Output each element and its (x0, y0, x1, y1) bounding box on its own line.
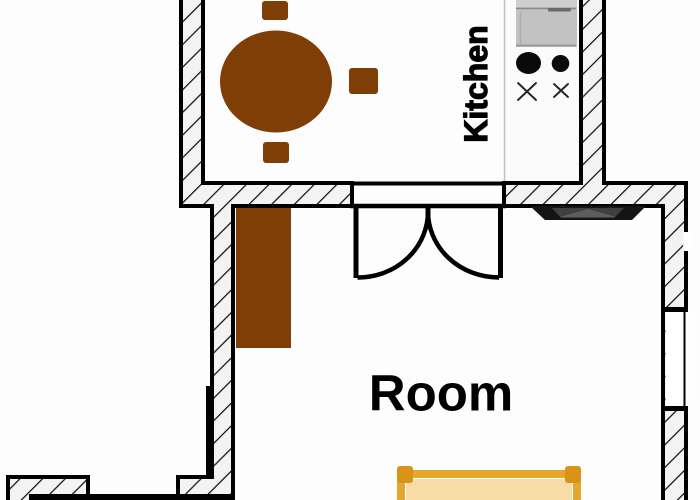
svg-text:Room: Room (369, 365, 513, 422)
svg-text:Kitchen: Kitchen (458, 25, 494, 142)
